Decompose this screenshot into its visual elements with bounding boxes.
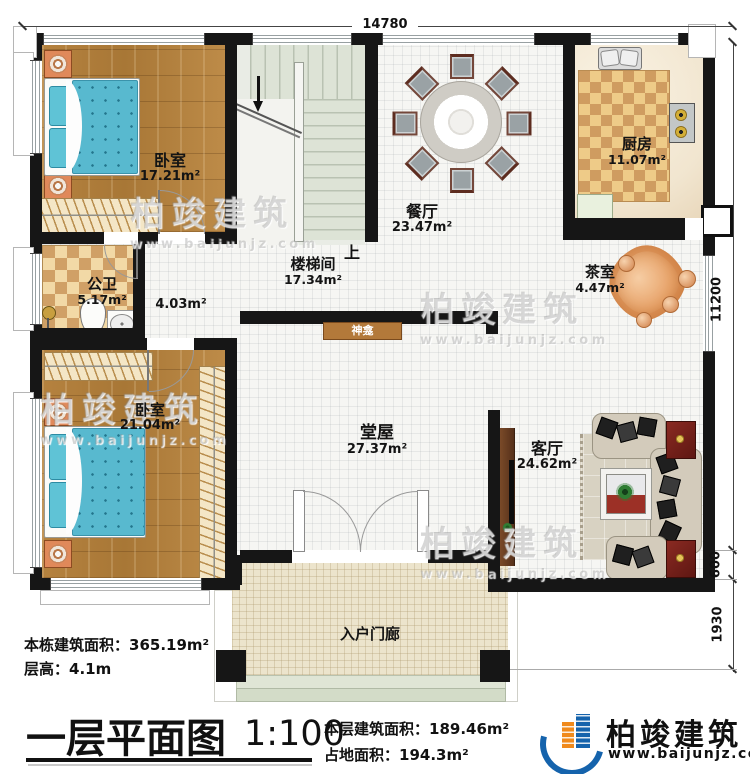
wall-stub-tearoom: [486, 324, 498, 334]
room-area: 24.62m²: [492, 458, 602, 473]
dining-chair: [507, 112, 532, 136]
building-area-line: 本栋建筑面积：365.19m²: [24, 634, 209, 655]
nightstand: [44, 540, 72, 568]
stair-up-label: 上: [344, 239, 360, 263]
room-label-living: 客厅 24.62m²: [492, 440, 602, 472]
floor-area-line: 本层建筑面积：189.46m²: [324, 718, 509, 739]
bedroom2-closet: [44, 352, 153, 381]
shrine-label: 神龛: [352, 324, 374, 337]
room-name: 卧室: [95, 402, 205, 419]
footprint-line: 占地面积：194.3m²: [324, 744, 469, 765]
dining-table: [420, 81, 502, 163]
dimension-step: 600: [709, 540, 724, 590]
room-name: 客厅: [492, 440, 602, 458]
room-name: 厨房: [582, 136, 692, 153]
porch-step-1: [236, 675, 506, 689]
tea-stool: [678, 270, 696, 288]
wall-living-west: [488, 410, 500, 592]
room-name: 入户门廊: [300, 626, 440, 643]
brand-logo-building-blue-icon: [576, 714, 590, 748]
nightstand: [44, 398, 72, 426]
brand-website: www.baijunjz.com: [608, 746, 750, 762]
room-name: 卧室: [115, 152, 225, 170]
window-north-stair: [252, 33, 352, 45]
stair-arrow-stem: [257, 76, 260, 102]
room-name: 餐厅: [367, 203, 477, 221]
room-area: 17.34m²: [258, 273, 368, 287]
porch-column-right: [480, 650, 510, 682]
window-north-dining: [382, 33, 535, 45]
wall-kitchen-west: [563, 33, 575, 240]
dimension-height: 11200: [710, 270, 725, 330]
corner-box-ne: [688, 24, 716, 58]
flue-box: [701, 205, 733, 237]
window-north-kitchen: [590, 33, 679, 45]
room-area: 11.07m²: [582, 153, 692, 167]
room-area: 4.03m²: [141, 298, 221, 313]
shrine-shelf: 神龛: [323, 322, 402, 340]
room-label-dining: 餐厅 23.47m²: [367, 203, 477, 235]
floor-height-line: 层高：4.1m: [24, 658, 111, 679]
building-area-value: 365.19m²: [129, 636, 209, 654]
room-name: 公卫: [47, 276, 157, 293]
room-label-corridor: 4.03m²: [141, 298, 221, 313]
floor-plan: 神龛 柏竣建筑www.baijunjz.com 柏竣建筑www.baijunjz…: [0, 0, 750, 774]
stove-burner-1: [675, 109, 687, 121]
wall-porch-stub: [228, 555, 242, 585]
porch-step-2: [236, 688, 506, 702]
building-area-label: 本栋建筑面积：: [24, 636, 129, 654]
dimension-width: 14780: [352, 17, 418, 32]
room-area: 27.37m²: [322, 443, 432, 458]
bathroom-door-opening: [104, 232, 138, 244]
room-label-tearoom: 茶室 4.47m²: [545, 264, 655, 295]
kitchen-door-opening: [685, 218, 703, 240]
window-north-bedroom1: [43, 33, 205, 45]
room-name: 堂屋: [322, 424, 432, 443]
window-west-bathroom: [30, 253, 42, 325]
stair-flight-top: [250, 45, 365, 100]
room-label-bedroom1: 卧室 17.21m²: [115, 152, 225, 184]
wall-hall-south-right: [428, 550, 490, 563]
wall-bedroom2-north: [30, 338, 237, 350]
footprint-value: 194.3m²: [399, 746, 469, 764]
wall-living-south: [488, 578, 715, 592]
nightstand: [44, 50, 72, 78]
porch-floor: [232, 563, 508, 675]
room-label-bedroom2: 卧室 21.04m²: [95, 402, 205, 433]
room-area: 21.04m²: [95, 419, 205, 434]
bedroom2-door-opening: [147, 338, 194, 350]
floor-area-label: 本层建筑面积：: [324, 720, 429, 738]
room-label-hall: 堂屋 27.37m²: [322, 424, 432, 458]
dimension-porch: 1930: [711, 595, 726, 655]
sink-basin-left: [600, 49, 620, 67]
side-table-star: [675, 434, 685, 444]
dining-chair: [393, 112, 418, 136]
shower-head: [42, 306, 56, 320]
stair-flight-right: [302, 99, 365, 240]
room-label-kitchen: 厨房 11.07m²: [582, 136, 692, 167]
wall-bedroom2-east: [225, 338, 237, 590]
wall-stair-west: [225, 33, 237, 244]
nightstand: [44, 172, 72, 200]
sofa-cushion: [657, 499, 678, 520]
floor-height-label: 层高：: [24, 660, 69, 678]
bed2-mattress: [72, 428, 145, 536]
sofa-cushion: [637, 417, 658, 438]
sink-basin-right: [619, 49, 639, 67]
wall-hall-south-left: [240, 550, 292, 563]
window-west-bedroom1: [30, 60, 42, 154]
wall-kitchen-south: [563, 218, 685, 240]
footprint-label: 占地面积：: [324, 746, 399, 764]
brand-logo-building-orange-icon: [562, 722, 574, 748]
window-south-bedroom2: [50, 578, 202, 590]
side-table-star: [675, 553, 685, 563]
room-label-porch: 入户门廊: [300, 626, 440, 643]
dining-chair: [450, 54, 474, 79]
window-west-bedroom2: [30, 398, 42, 568]
table-plant: [615, 482, 635, 502]
tea-stool: [662, 296, 679, 313]
tea-stool: [636, 312, 652, 328]
plan-title: 一层平面图: [26, 706, 226, 764]
bedroom1-wardrobe: [31, 198, 161, 233]
dining-chair: [450, 168, 474, 193]
cabinet-plant: [502, 522, 513, 533]
stair-divider-wall: [294, 62, 304, 242]
room-area: 4.47m²: [545, 281, 655, 295]
floor-area-value: 189.46m²: [429, 720, 509, 738]
title-underline-shadow: [28, 764, 312, 766]
entry-door-post-right: [417, 490, 429, 552]
extension-line: [510, 669, 737, 670]
floor-height-value: 4.1m: [69, 660, 111, 678]
room-name: 茶室: [545, 264, 655, 281]
title-underline: [26, 758, 312, 762]
stair-arrow-head: [253, 101, 263, 112]
room-area: 17.21m²: [115, 170, 225, 185]
room-area: 23.47m²: [367, 221, 477, 236]
sill-south-bedroom2: [40, 590, 210, 605]
porch-column-left: [216, 650, 246, 682]
